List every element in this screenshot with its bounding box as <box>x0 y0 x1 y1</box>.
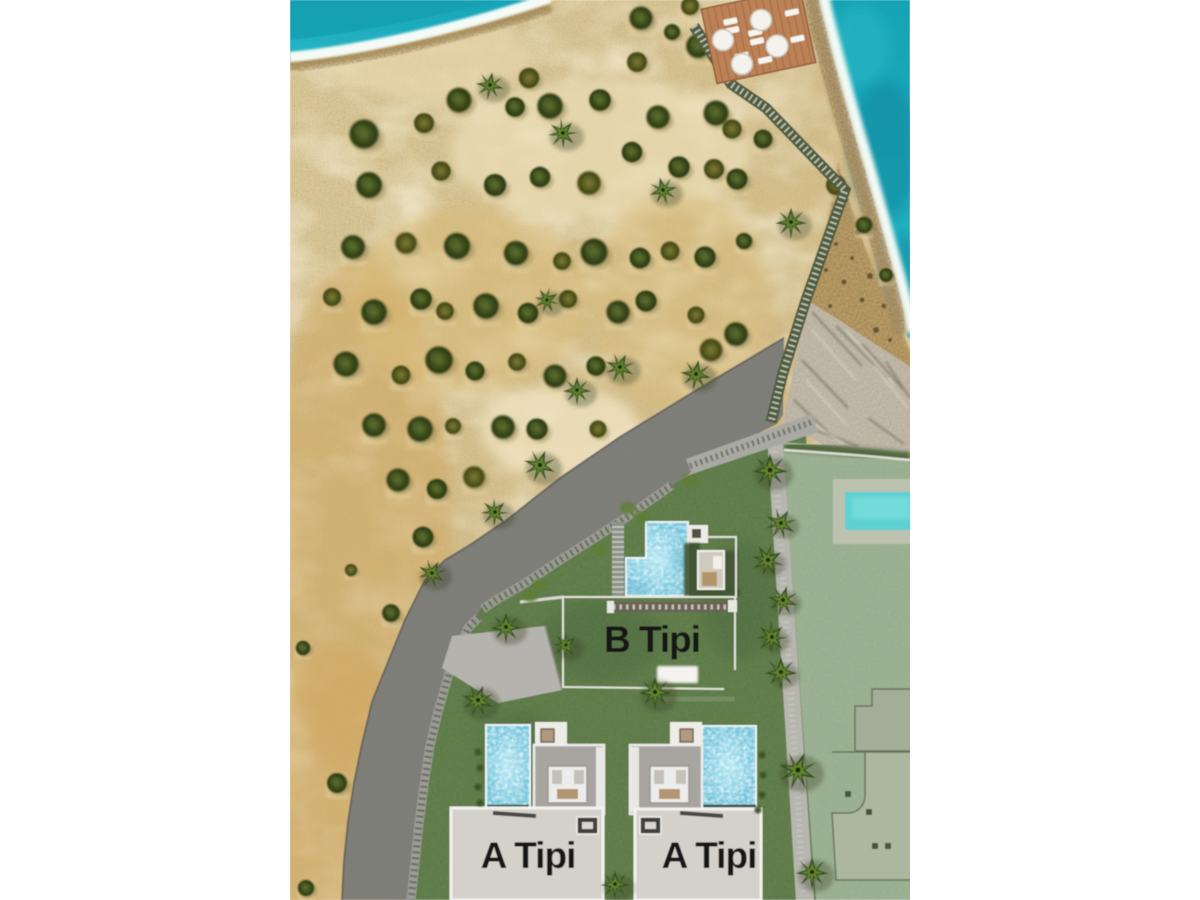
svg-text:A Tipi: A Tipi <box>662 835 757 876</box>
svg-text:A Tipi: A Tipi <box>481 835 576 876</box>
svg-text:B Tipi: B Tipi <box>604 619 700 660</box>
